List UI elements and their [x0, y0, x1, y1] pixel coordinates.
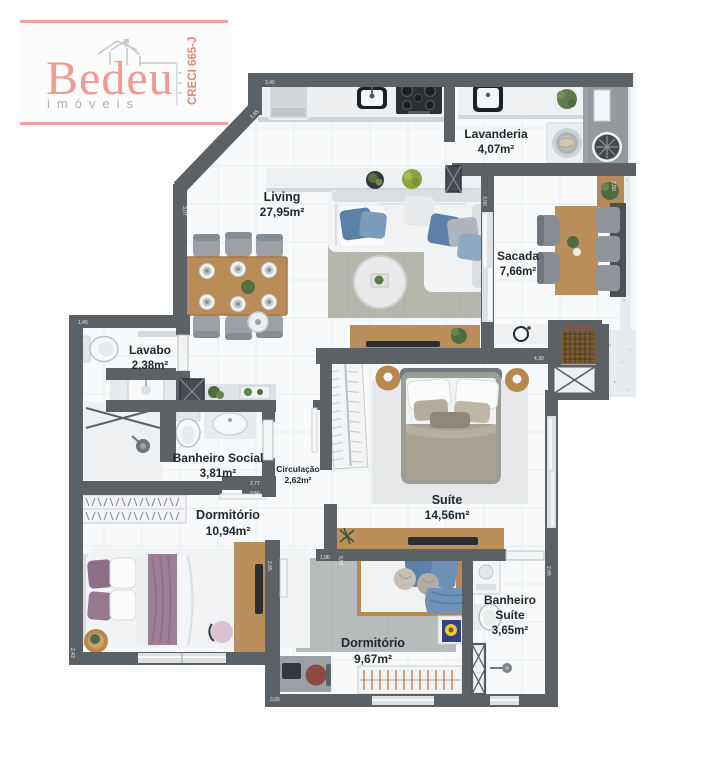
- svg-text:4,07m²: 4,07m²: [478, 144, 515, 156]
- svg-text:2,62m²: 2,62m²: [285, 475, 312, 485]
- svg-text:Lavabo: Lavabo: [129, 343, 171, 357]
- svg-text:imóveis: imóveis: [47, 96, 140, 111]
- svg-text:1,50: 1,50: [180, 338, 186, 348]
- svg-text:2,38m²: 2,38m²: [132, 360, 169, 372]
- svg-text:3,00: 3,00: [481, 196, 487, 206]
- svg-text:Lavanderia: Lavanderia: [464, 127, 528, 141]
- svg-text:Banheiro Social: Banheiro Social: [173, 451, 264, 465]
- svg-text:2,65: 2,65: [266, 561, 272, 571]
- svg-text:Suíte: Suíte: [432, 493, 463, 507]
- svg-text:2,50: 2,50: [610, 181, 616, 191]
- svg-text:3,07: 3,07: [181, 206, 187, 216]
- svg-text:1,00: 1,00: [320, 555, 330, 561]
- svg-text:0,55: 0,55: [337, 556, 343, 566]
- svg-text:Dormitório: Dormitório: [341, 636, 405, 650]
- svg-text:14,56m²: 14,56m²: [425, 508, 470, 522]
- svg-text:27,95m²: 27,95m²: [260, 205, 305, 219]
- svg-text:1,45: 1,45: [78, 320, 88, 326]
- svg-text:9,67m²: 9,67m²: [354, 652, 392, 666]
- svg-text:Sacada: Sacada: [497, 249, 539, 263]
- svg-text:2,65: 2,65: [545, 566, 551, 576]
- svg-text:Banheiro: Banheiro: [484, 593, 536, 607]
- svg-text:Circulação: Circulação: [276, 464, 319, 474]
- svg-text:3,56: 3,56: [250, 491, 260, 497]
- svg-text:3,40: 3,40: [265, 80, 275, 86]
- svg-text:Dormitório: Dormitório: [196, 508, 260, 522]
- svg-text:4,30: 4,30: [534, 356, 544, 362]
- svg-text:3,65m²: 3,65m²: [492, 625, 529, 637]
- svg-text:Suíte: Suíte: [495, 608, 525, 622]
- svg-text:2,43: 2,43: [69, 648, 75, 658]
- svg-text:10,94m²: 10,94m²: [206, 524, 251, 538]
- svg-text:Living: Living: [264, 190, 301, 204]
- svg-text:3,81m²: 3,81m²: [200, 468, 237, 480]
- svg-text:7,66m²: 7,66m²: [500, 266, 537, 278]
- svg-text:2,77: 2,77: [250, 481, 260, 487]
- svg-text:CRECI 665-J: CRECI 665-J: [187, 37, 199, 105]
- svg-text:3,65: 3,65: [270, 697, 280, 703]
